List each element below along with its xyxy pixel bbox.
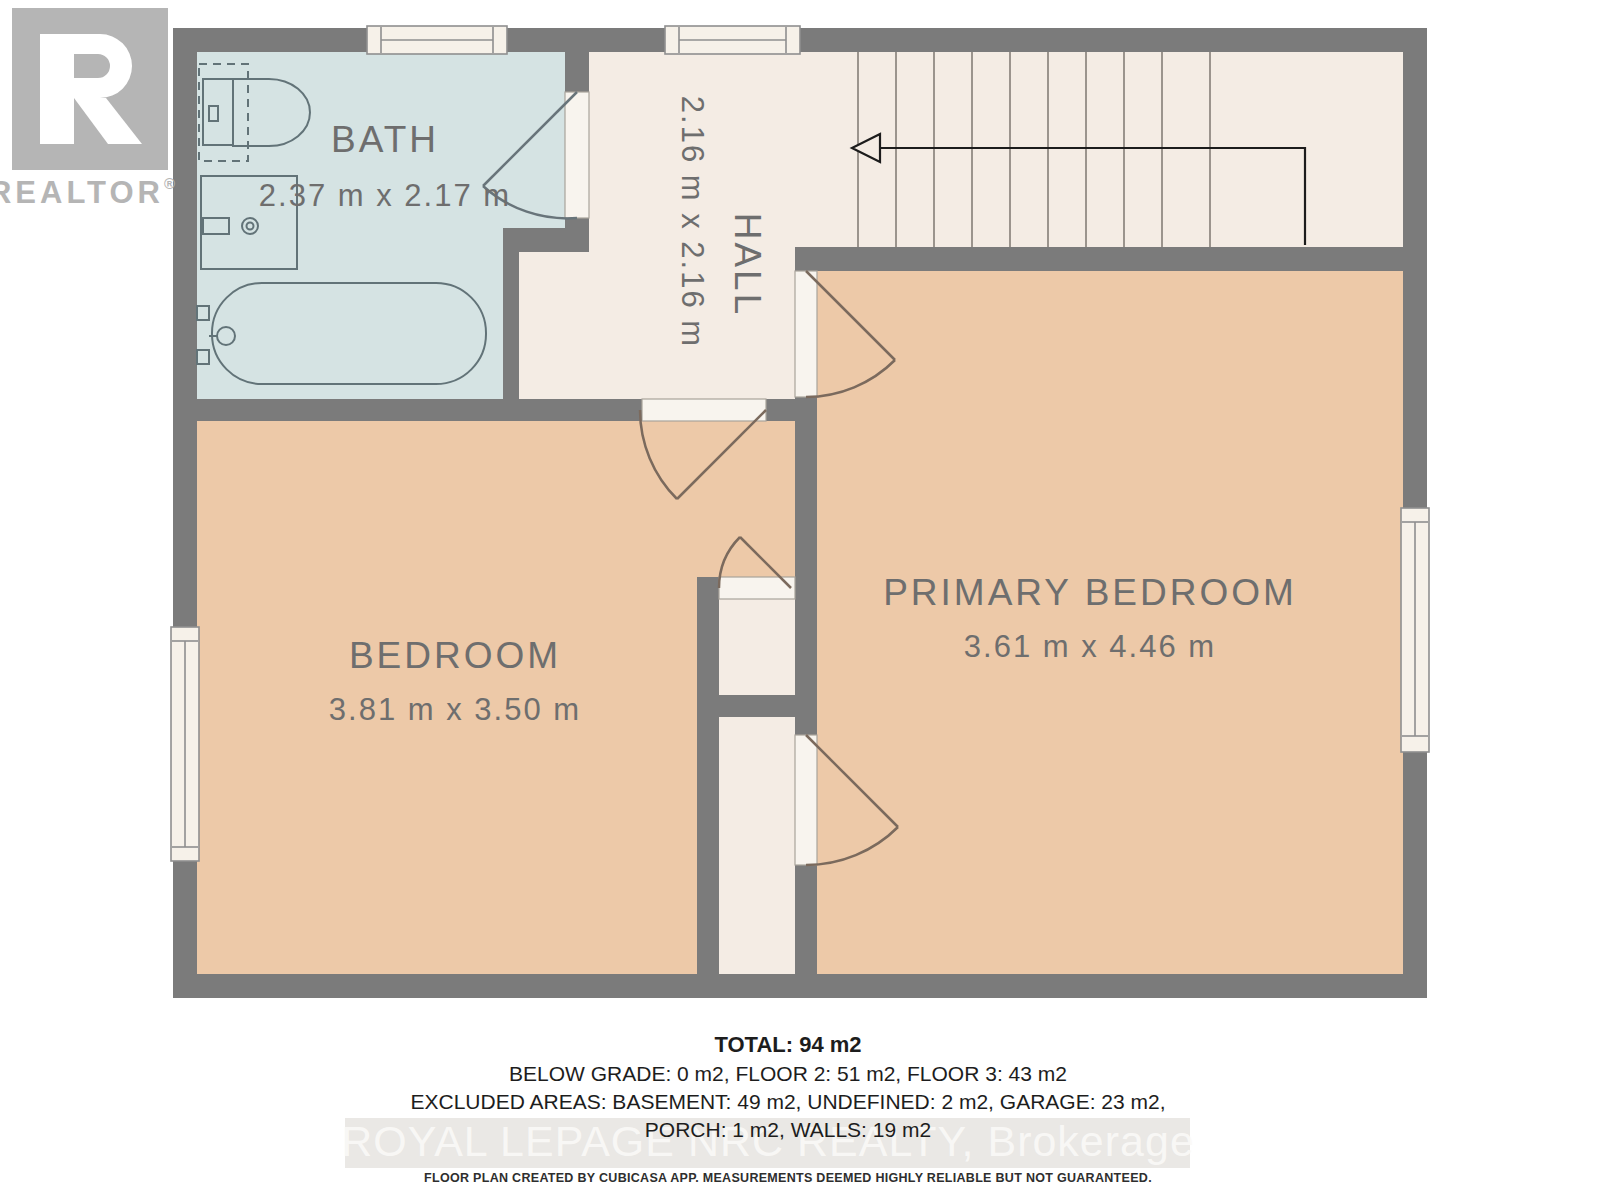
wall-segment — [197, 399, 642, 421]
bedroom-dimensions: 3.81 m x 3.50 m — [329, 692, 581, 727]
wall-segment — [795, 247, 1403, 271]
bath-dimensions: 2.37 m x 2.17 m — [259, 178, 511, 213]
primary-bedroom-label: PRIMARY BEDROOM — [883, 572, 1297, 613]
primary-bedroom-window — [1401, 508, 1429, 752]
bedroom-window — [171, 627, 199, 861]
hall-dimensions: 2.16 m x 2.16 m — [675, 96, 710, 348]
disclaimer-text: FLOOR PLAN CREATED BY CUBICASA APP. MEAS… — [424, 1171, 1152, 1185]
wall-segment — [173, 974, 1427, 998]
primary-bedroom-dimensions: 3.61 m x 4.46 m — [964, 629, 1216, 664]
bedroom-label: BEDROOM — [349, 635, 561, 676]
bath-label: BATH — [331, 119, 439, 160]
realtor-wordmark: REALTOR® — [0, 175, 179, 210]
wall-segment — [565, 52, 589, 92]
wall-segment — [795, 397, 817, 735]
total-area-text: TOTAL: 94 m2 — [714, 1032, 861, 1057]
wall-segment — [697, 695, 817, 717]
primary-bedroom-floor — [817, 271, 1403, 974]
wall-segment — [795, 865, 817, 974]
excluded-areas-text: EXCLUDED AREAS: BASEMENT: 49 m2, UNDEFIN… — [410, 1090, 1165, 1113]
realtor-logo: REALTOR® — [0, 8, 179, 210]
bath-window — [367, 26, 507, 54]
floor-plan: BATH 2.37 m x 2.17 m HALL 2.16 m x 2.16 … — [0, 0, 1600, 1200]
hall-window — [665, 26, 800, 54]
footer: ROYAL LEPAGE NRC REALTY, Brokerage TOTAL… — [341, 1032, 1195, 1185]
wall-segment — [503, 228, 589, 252]
floor-areas-text: BELOW GRADE: 0 m2, FLOOR 2: 51 m2, FLOOR… — [509, 1062, 1067, 1085]
hall-label: HALL — [727, 213, 768, 318]
wall-segment — [503, 252, 519, 399]
wall-segment — [697, 577, 719, 974]
floor-plan-page: BATH 2.37 m x 2.17 m HALL 2.16 m x 2.16 … — [0, 0, 1600, 1200]
excluded-areas-text-2: PORCH: 1 m2, WALLS: 19 m2 — [645, 1118, 931, 1141]
